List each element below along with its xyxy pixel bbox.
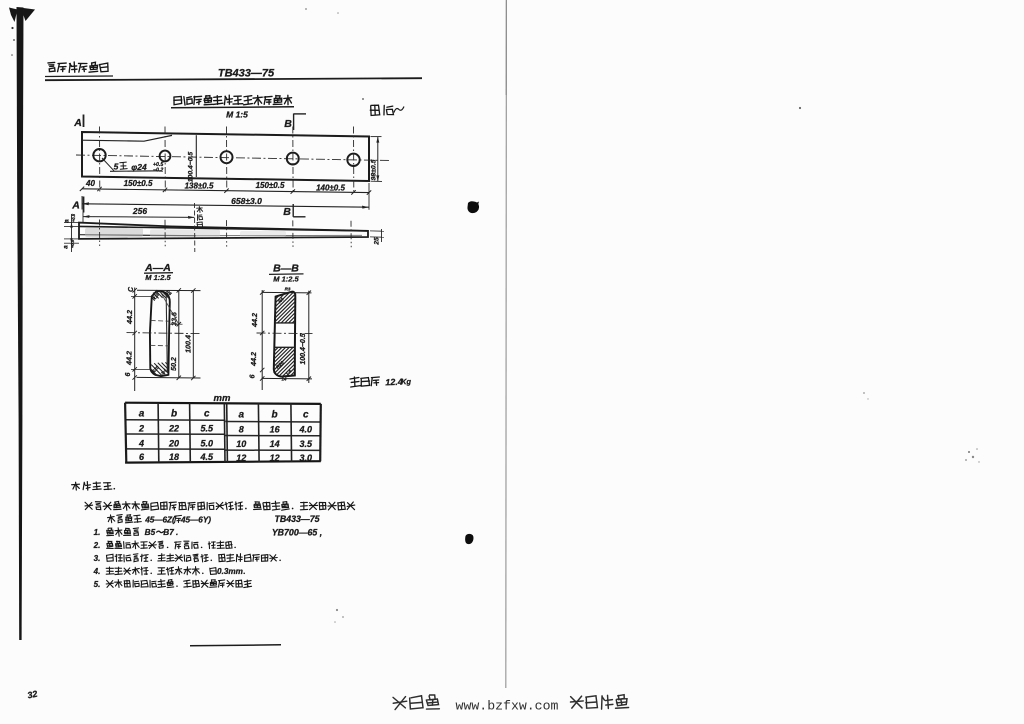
svg-text:256: 256: [132, 206, 147, 216]
svg-text:16: 16: [270, 424, 281, 434]
svg-text:100.4−0.5: 100.4−0.5: [188, 152, 195, 183]
svg-text:TB433—75: TB433—75: [275, 514, 320, 524]
svg-text:44.2: 44.2: [250, 313, 259, 328]
svg-text:+0.5: +0.5: [70, 239, 75, 248]
svg-text:44.2: 44.2: [124, 351, 133, 366]
svg-text:44.2: 44.2: [249, 352, 258, 367]
svg-text:3.: 3.: [94, 554, 101, 563]
svg-text:1.: 1.: [94, 528, 101, 537]
svg-text:4.: 4.: [93, 567, 101, 576]
svg-text:4.0: 4.0: [299, 424, 313, 434]
svg-text:98±0.5: 98±0.5: [371, 159, 378, 180]
svg-text:140±0.5: 140±0.5: [316, 184, 345, 193]
svg-text:22: 22: [168, 424, 179, 434]
svg-text:100.4: 100.4: [184, 335, 193, 353]
svg-text:www.bzfxw.com: www.bzfxw.com: [456, 699, 559, 714]
svg-text:14: 14: [270, 439, 280, 449]
svg-text:10: 10: [236, 439, 246, 449]
svg-text:TB433—75: TB433—75: [218, 68, 275, 80]
svg-text:40: 40: [85, 179, 95, 188]
svg-text:+0.5: +0.5: [71, 213, 76, 222]
svg-text:R20: R20: [275, 360, 286, 371]
svg-text:2.: 2.: [93, 541, 101, 550]
svg-text:6: 6: [125, 372, 132, 376]
svg-text:B5～B7 .: B5～B7 .: [145, 528, 179, 537]
svg-text:A: A: [71, 200, 80, 212]
svg-text:3.5: 3.5: [300, 439, 314, 449]
svg-text:A: A: [73, 117, 82, 129]
svg-text:45—6Y): 45—6Y): [180, 515, 211, 524]
svg-text:3.0: 3.0: [300, 453, 313, 463]
svg-text:c: c: [204, 409, 210, 420]
svg-text:150±0.5: 150±0.5: [124, 179, 153, 188]
svg-text:4: 4: [138, 438, 144, 448]
svg-text:18: 18: [169, 452, 179, 462]
svg-text:5.: 5.: [94, 580, 101, 589]
svg-text:φ24: φ24: [131, 162, 147, 172]
svg-text:Kg: Kg: [401, 377, 412, 386]
svg-text:R16: R16: [151, 291, 160, 301]
svg-text:M 1:2.5: M 1:2.5: [273, 275, 299, 284]
svg-text:658±3.0: 658±3.0: [231, 196, 262, 206]
svg-text:M 1:2.5: M 1:2.5: [145, 273, 171, 282]
svg-text:c: c: [303, 410, 309, 421]
svg-text:a: a: [63, 245, 70, 249]
svg-text:8: 8: [239, 424, 244, 434]
svg-text:150±0.5: 150±0.5: [256, 181, 285, 190]
svg-text:5.0: 5.0: [201, 438, 214, 448]
svg-text:2: 2: [138, 424, 144, 434]
svg-text:5: 5: [114, 162, 119, 172]
svg-text:33.6: 33.6: [171, 312, 178, 326]
svg-text:44.2: 44.2: [125, 310, 134, 325]
svg-text:6: 6: [250, 374, 257, 378]
svg-text:32: 32: [26, 689, 38, 701]
svg-text:50.2: 50.2: [171, 357, 178, 371]
svg-text:B: B: [284, 118, 292, 130]
svg-text:45—6Z(: 45—6Z(: [144, 515, 176, 524]
svg-text:C: C: [128, 286, 135, 292]
svg-text:0.3mm: 0.3mm: [217, 567, 243, 576]
svg-text:12: 12: [236, 453, 246, 463]
svg-text:5.5: 5.5: [201, 424, 215, 434]
svg-text:25: 25: [374, 237, 381, 246]
svg-text:R3: R3: [285, 286, 291, 291]
svg-text:b: b: [272, 410, 278, 421]
svg-text:20: 20: [168, 438, 179, 448]
svg-text:a: a: [239, 410, 245, 421]
svg-text:b: b: [171, 409, 177, 420]
svg-text:YB700—65 ,: YB700—65 ,: [272, 528, 322, 538]
svg-text:100.4−0.5: 100.4−0.5: [300, 333, 307, 364]
svg-text:B—B: B—B: [273, 263, 299, 275]
svg-text:12: 12: [270, 453, 280, 463]
svg-text:a: a: [64, 219, 71, 223]
svg-text:B: B: [283, 206, 291, 218]
svg-text:6: 6: [139, 452, 145, 462]
svg-text:−0.2: −0.2: [153, 168, 163, 174]
svg-text:a: a: [139, 409, 145, 420]
svg-text:4.5: 4.5: [200, 452, 215, 462]
svg-text:M 1:5: M 1:5: [226, 110, 248, 120]
